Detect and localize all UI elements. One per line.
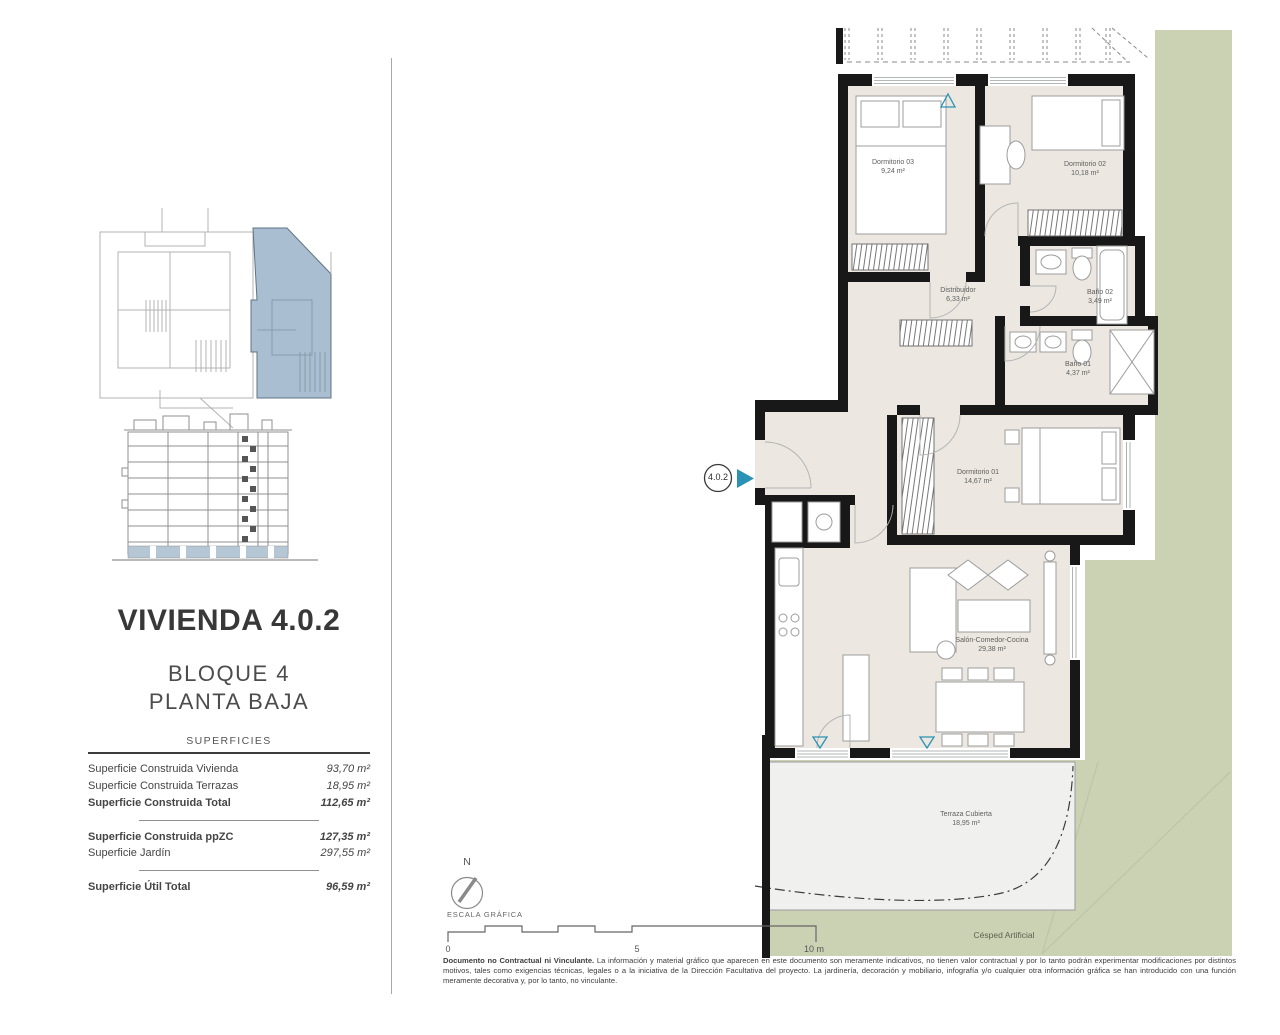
room-label-dormitorio-01: Dormitorio 01 14,67 m² <box>957 468 999 486</box>
floor-label: PLANTA BAJA <box>88 688 370 716</box>
table-row: Superficie Construida ppZC 127,35 m² <box>88 829 370 846</box>
table-divider <box>139 870 319 871</box>
disclaimer-text: Documento no Contractual ni Vinculante. … <box>443 956 1236 986</box>
superficies-header: SUPERFICIES <box>88 735 370 752</box>
row-value: 112,65 m² <box>321 796 370 811</box>
row-label: Superficie Construida ppZC <box>88 830 233 845</box>
room-label-dormitorio-02: Dormitorio 02 10,18 m² <box>1064 160 1106 178</box>
row-value: 127,35 m² <box>320 830 370 845</box>
table-row: Superficie Construida Terrazas 18,95 m² <box>88 778 370 795</box>
panel-divider <box>391 58 392 994</box>
row-value: 297,55 m² <box>320 846 370 861</box>
row-value: 93,70 m² <box>327 762 370 777</box>
plan-sheet: VIVIENDA 4.0.2 BLOQUE 4 PLANTA BAJA SUPE… <box>0 0 1280 1035</box>
disclaimer-lead: Documento no Contractual ni Vinculante. <box>443 956 594 965</box>
row-label: Superficie Construida Terrazas <box>88 779 238 794</box>
room-label-bano-02: Baño 02 3,49 m² <box>1087 288 1113 306</box>
room-label-terraza: Terraza Cubierta 18,95 m² <box>940 810 992 828</box>
pergola-dashes <box>838 28 1148 62</box>
room-label-dormitorio-03: Dormitorio 03 9,24 m² <box>872 158 914 176</box>
scale-tick-5: 5 <box>634 944 639 954</box>
scale-tick-0: 0 <box>445 944 450 954</box>
scale-tick-10m: 10 m <box>804 944 824 954</box>
building-section <box>112 414 318 560</box>
block-floor: BLOQUE 4 PLANTA BAJA <box>88 660 370 715</box>
key-plan <box>100 208 331 428</box>
info-panel: VIVIENDA 4.0.2 BLOQUE 4 PLANTA BAJA SUPE… <box>88 604 370 896</box>
unit-marker-label: 4.0.2 <box>708 472 728 482</box>
table-row: Superficie Construida Total 112,65 m² <box>88 795 370 812</box>
table-row: Superficie Jardín 297,55 m² <box>88 845 370 862</box>
table-row: Superficie Útil Total 96,59 m² <box>88 879 370 896</box>
row-label: Superficie Construida Vivienda <box>88 762 238 777</box>
scale-title: ESCALA GRÁFICA <box>447 910 523 919</box>
terrace-area <box>755 762 1075 910</box>
block-label: BLOQUE 4 <box>88 660 370 688</box>
north-arrow-icon <box>452 878 483 909</box>
scale-bar <box>448 926 816 942</box>
garden-label: Césped Artificial <box>974 930 1035 940</box>
room-label-salon: Salón-Comedor-Cocina 29,38 m² <box>955 636 1028 654</box>
row-label: Superficie Construida Total <box>88 796 231 811</box>
row-label: Superficie Jardín <box>88 846 171 861</box>
row-value: 18,95 m² <box>327 779 370 794</box>
row-value: 96,59 m² <box>326 880 370 895</box>
unit-title: VIVIENDA 4.0.2 <box>88 604 370 638</box>
table-rule <box>88 752 370 754</box>
table-divider <box>139 820 319 821</box>
row-label: Superficie Útil Total <box>88 880 190 895</box>
table-row: Superficie Construida Vivienda 93,70 m² <box>88 761 370 778</box>
room-label-distribuidor: Distribuidor 6,33 m² <box>940 286 975 304</box>
room-label-bano-01: Baño 01 4,37 m² <box>1065 360 1091 378</box>
north-label: N <box>463 856 471 868</box>
